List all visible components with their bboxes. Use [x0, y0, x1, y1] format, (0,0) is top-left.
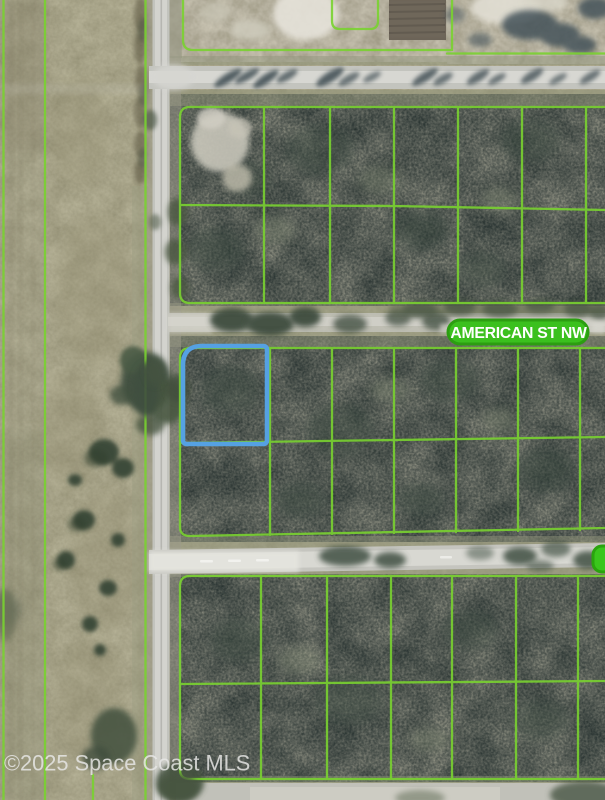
svg-text:©2025 Space Coast MLS: ©2025 Space Coast MLS — [4, 751, 250, 776]
svg-text:AMERICAN ST NW: AMERICAN ST NW — [450, 325, 587, 342]
